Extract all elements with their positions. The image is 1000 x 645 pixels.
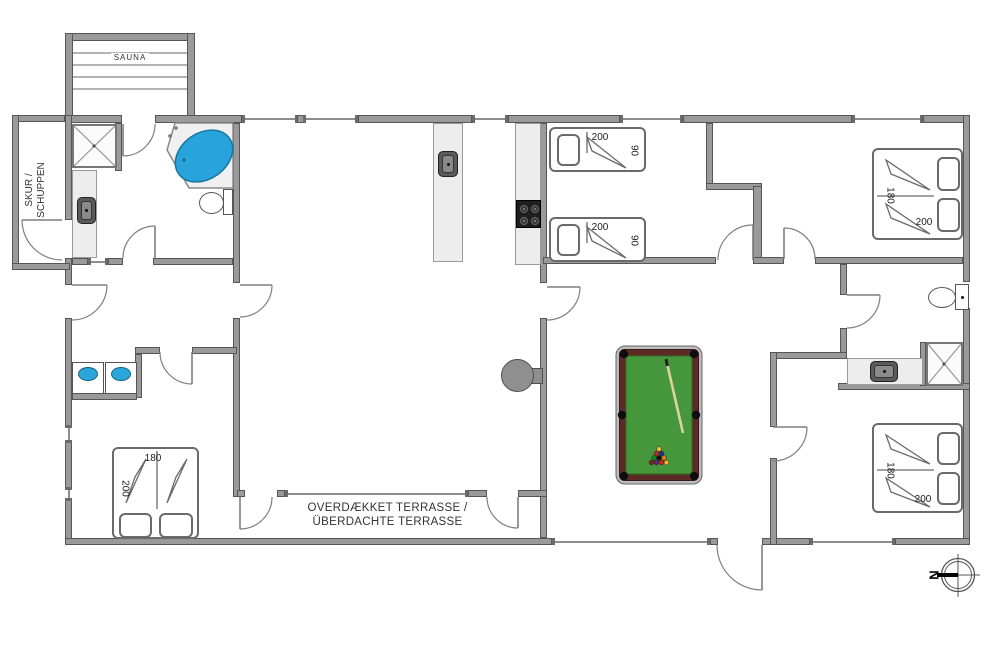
terrace-label-line1: OVERDÆKKET TERRASSE / [245,501,530,515]
washing-machine-icon [72,362,104,394]
washing-machine-icon [105,362,137,394]
kitchen-island [433,123,463,262]
terrace-label-line2: ÜBERDACHTE TERRASSE [245,515,530,529]
double-bed: 180 200 [112,447,199,539]
door-arcs-layer [0,0,1000,645]
bed-width-label: 180 [130,453,176,464]
kitchen-counter [515,123,541,265]
north-label: N [928,570,942,579]
single-bed: 200 90 [549,217,646,262]
single-bed: 200 90 [549,127,646,172]
compass-rose: N [928,548,990,606]
bathtub-icon [163,120,237,192]
toilet-icon [928,283,970,313]
bed-length-label: 200 [907,217,941,228]
bed-length-label: 200 [583,132,617,143]
bed-length-label: 200 [906,494,940,505]
bed-length-label: 200 [120,472,131,506]
pool-table [615,345,703,485]
double-bed: 180 200 [872,423,963,513]
double-bed: 180 200 [872,148,963,240]
sink-icon [77,197,96,224]
bed-width-label: 90 [629,139,640,163]
kitchen-sink-icon [438,151,458,177]
sink-icon [870,361,898,382]
fireplace-icon [501,359,534,392]
shower-icon [72,124,117,168]
floor-plan-canvas: SAUNA SKUR / SCHUPPEN [0,0,1000,645]
bed-width-label: 180 [885,454,896,488]
shower-icon [926,342,963,386]
toilet-icon [197,188,234,218]
stove-icon [516,200,541,228]
bed-width-label: 180 [885,179,896,213]
bed-width-label: 90 [629,229,640,253]
terrace-label: OVERDÆKKET TERRASSE / ÜBERDACHTE TERRASS… [245,501,530,529]
bed-length-label: 200 [583,222,617,233]
